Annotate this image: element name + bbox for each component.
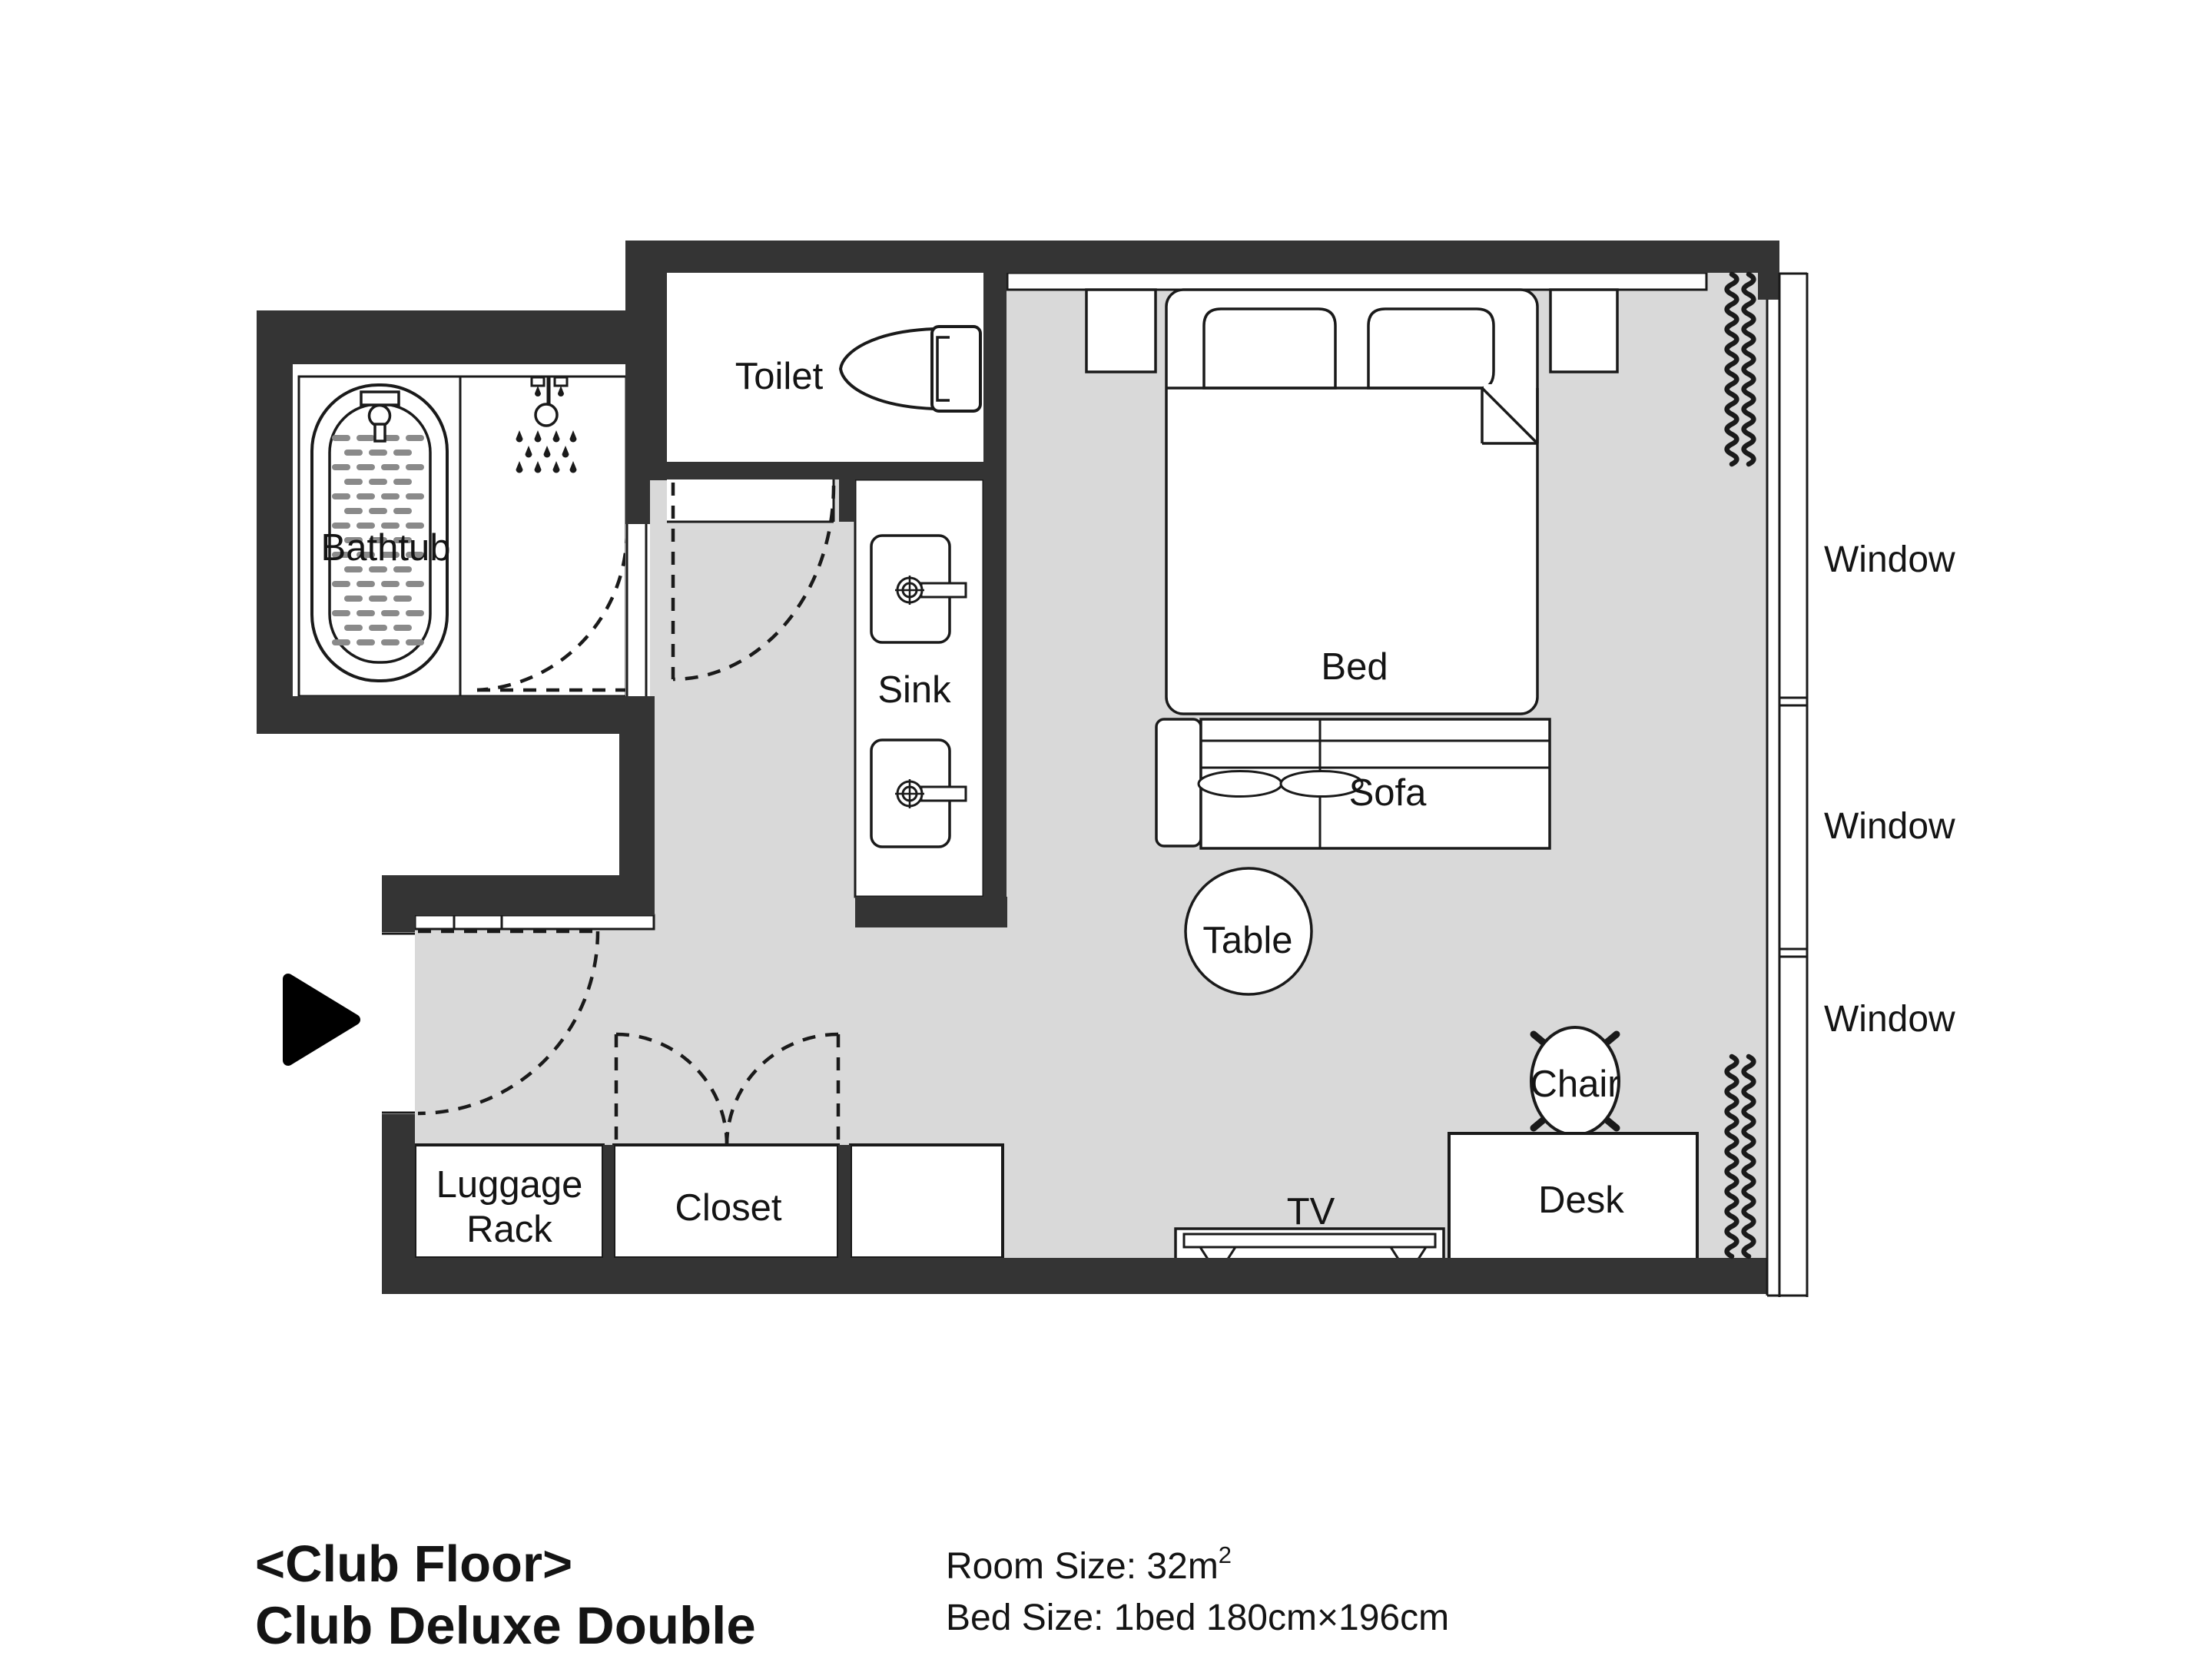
svg-text:Bed: Bed <box>1321 646 1388 688</box>
svg-text:Luggage: Luggage <box>436 1164 583 1206</box>
svg-text:Sink: Sink <box>877 669 951 711</box>
svg-text:Bed Size: 1bed 180cm×196cm: Bed Size: 1bed 180cm×196cm <box>946 1598 1449 1638</box>
svg-text:Room Size: 32m2: Room Size: 32m2 <box>946 1541 1232 1587</box>
svg-text:Rack: Rack <box>466 1209 552 1250</box>
svg-text:Sofa: Sofa <box>1349 772 1428 814</box>
svg-text:<Club Floor>: <Club Floor> <box>255 1535 572 1593</box>
svg-text:Window: Window <box>1824 539 1955 580</box>
svg-text:TV: TV <box>1287 1191 1335 1233</box>
svg-text:Bathtub: Bathtub <box>321 527 451 569</box>
svg-text:Window: Window <box>1824 806 1955 847</box>
svg-text:Desk: Desk <box>1538 1180 1624 1221</box>
svg-text:Window: Window <box>1824 999 1955 1040</box>
svg-text:Toilet: Toilet <box>735 356 824 397</box>
svg-text:Club Deluxe Double: Club Deluxe Double <box>255 1596 756 1655</box>
svg-text:Table: Table <box>1202 920 1292 961</box>
svg-text:Closet: Closet <box>675 1187 782 1229</box>
svg-text:Chair: Chair <box>1530 1063 1620 1105</box>
